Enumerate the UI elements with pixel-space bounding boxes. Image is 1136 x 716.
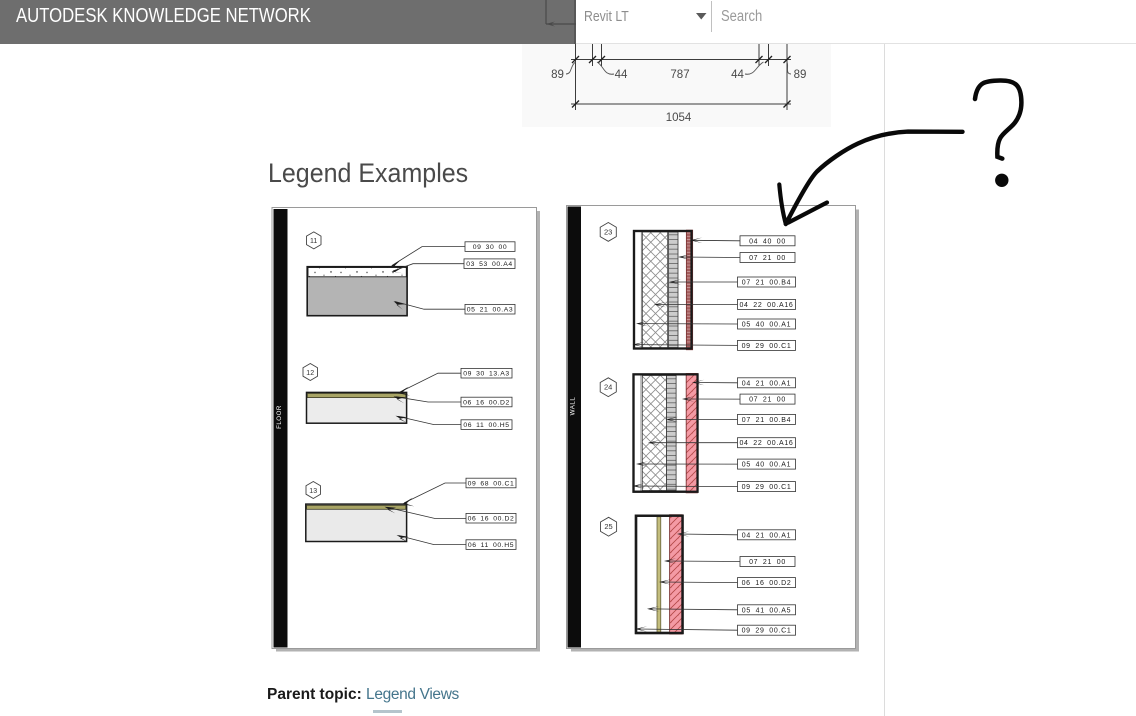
svg-text:13: 13 [309,488,317,495]
svg-text:11: 11 [310,238,317,245]
svg-text:787: 787 [670,69,689,81]
svg-text:06 16 00.D2: 06 16 00.D2 [742,580,792,587]
svg-text:09 68 00.C1: 09 68 00.C1 [468,480,515,487]
svg-text:25: 25 [604,522,612,531]
svg-text:44: 44 [615,69,628,81]
svg-text:05 40 00.A1: 05 40 00.A1 [742,322,791,329]
svg-text:FLOOR: FLOOR [276,405,283,429]
svg-text:05 21 00.A3: 05 21 00.A3 [467,307,513,314]
svg-text:06 16 00.D2: 06 16 00.D2 [463,399,510,406]
svg-text:03 53 00.A4: 03 53 00.A4 [466,261,512,268]
svg-text:06 11 00.H5: 06 11 00.H5 [468,542,514,549]
svg-text:04 21 00.A1: 04 21 00.A1 [742,380,791,387]
svg-text:04 22 00.A16: 04 22 00.A16 [739,302,793,309]
svg-text:05 41 00.A5: 05 41 00.A5 [742,607,791,614]
svg-text:07 21 00.B4: 07 21 00.B4 [742,417,791,424]
svg-text:06 16 00.D2: 06 16 00.D2 [468,516,515,523]
svg-text:89: 89 [551,69,564,81]
svg-text:24: 24 [604,383,612,392]
svg-text:09 30 00: 09 30 00 [473,244,507,251]
svg-text:04 21 00.A1: 04 21 00.A1 [742,532,791,539]
svg-text:09 29 00.C1: 09 29 00.C1 [742,484,792,491]
svg-text:WALL: WALL [570,397,577,416]
svg-text:09 29 00.C1: 09 29 00.C1 [742,343,792,350]
svg-text:09 30 13.A3: 09 30 13.A3 [463,371,509,378]
svg-text:09 29 00.C1: 09 29 00.C1 [742,628,792,635]
svg-text:05 40 00.A1: 05 40 00.A1 [742,462,791,469]
svg-text:06 11 00.H5: 06 11 00.H5 [463,422,509,429]
svg-text:44: 44 [731,69,744,81]
svg-text:04 22 00.A16: 04 22 00.A16 [739,440,793,447]
svg-text:12: 12 [306,370,314,377]
svg-text:07 21 00: 07 21 00 [749,559,786,566]
svg-text:23: 23 [604,227,612,236]
svg-text:07 21 00: 07 21 00 [749,255,786,262]
svg-text:07 21 00: 07 21 00 [749,397,786,404]
svg-text:07 21 00.B4: 07 21 00.B4 [742,280,791,287]
svg-text:1054: 1054 [666,112,692,124]
